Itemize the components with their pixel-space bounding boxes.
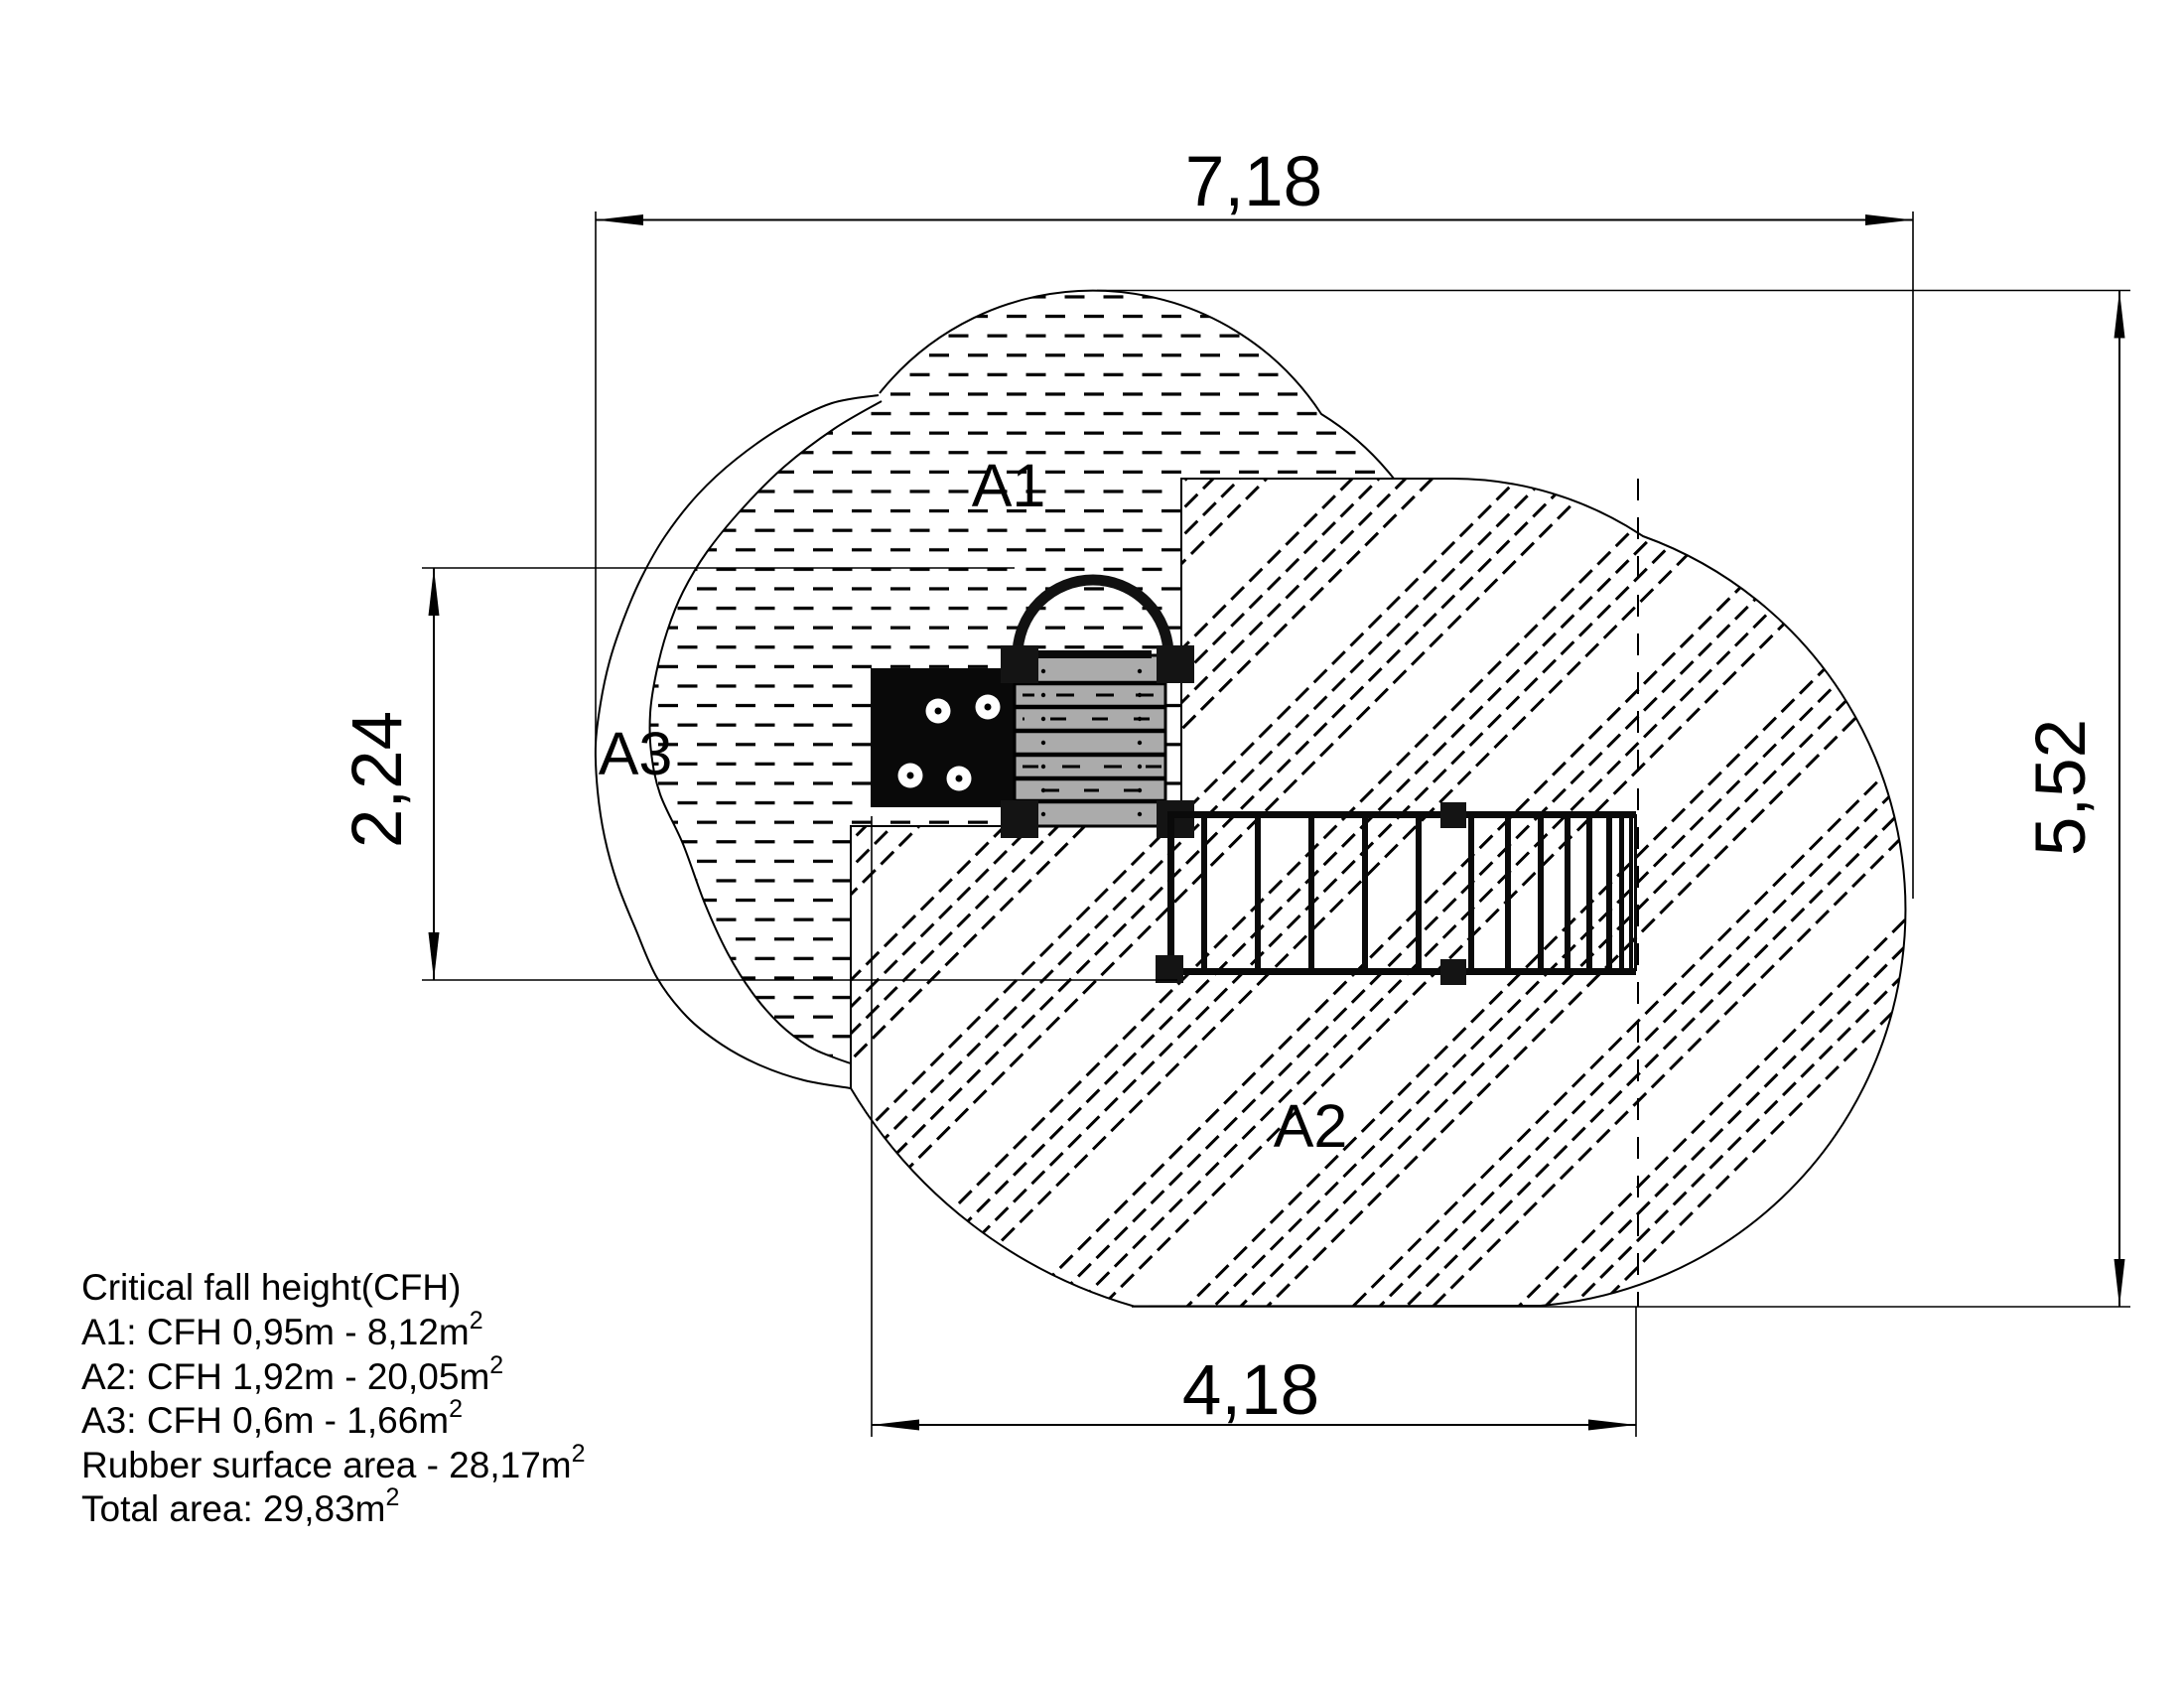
svg-text:2,24: 2,24 <box>339 711 417 848</box>
svg-text:7,18: 7,18 <box>1185 143 1322 221</box>
svg-text:Rubber surface area - 28,17m2: Rubber surface area - 28,17m2 <box>81 1440 586 1485</box>
svg-text:5,52: 5,52 <box>2022 719 2101 856</box>
svg-text:Critical fall height(CFH): Critical fall height(CFH) <box>81 1267 461 1308</box>
svg-text:A1: A1 <box>972 452 1046 519</box>
svg-text:4,18: 4,18 <box>1182 1351 1319 1430</box>
svg-text:A3: CFH 0,6m - 1,66m2: A3: CFH 0,6m - 1,66m2 <box>81 1395 463 1441</box>
svg-text:Total area: 29,83m2: Total area: 29,83m2 <box>81 1483 399 1529</box>
svg-text:A2: A2 <box>1274 1092 1348 1160</box>
svg-text:A1: CFH 0,95m - 8,12m2: A1: CFH 0,95m - 8,12m2 <box>81 1307 483 1352</box>
svg-text:A2: CFH 1,92m - 20,05m2: A2: CFH 1,92m - 20,05m2 <box>81 1351 503 1397</box>
svg-text:A3: A3 <box>599 720 673 787</box>
